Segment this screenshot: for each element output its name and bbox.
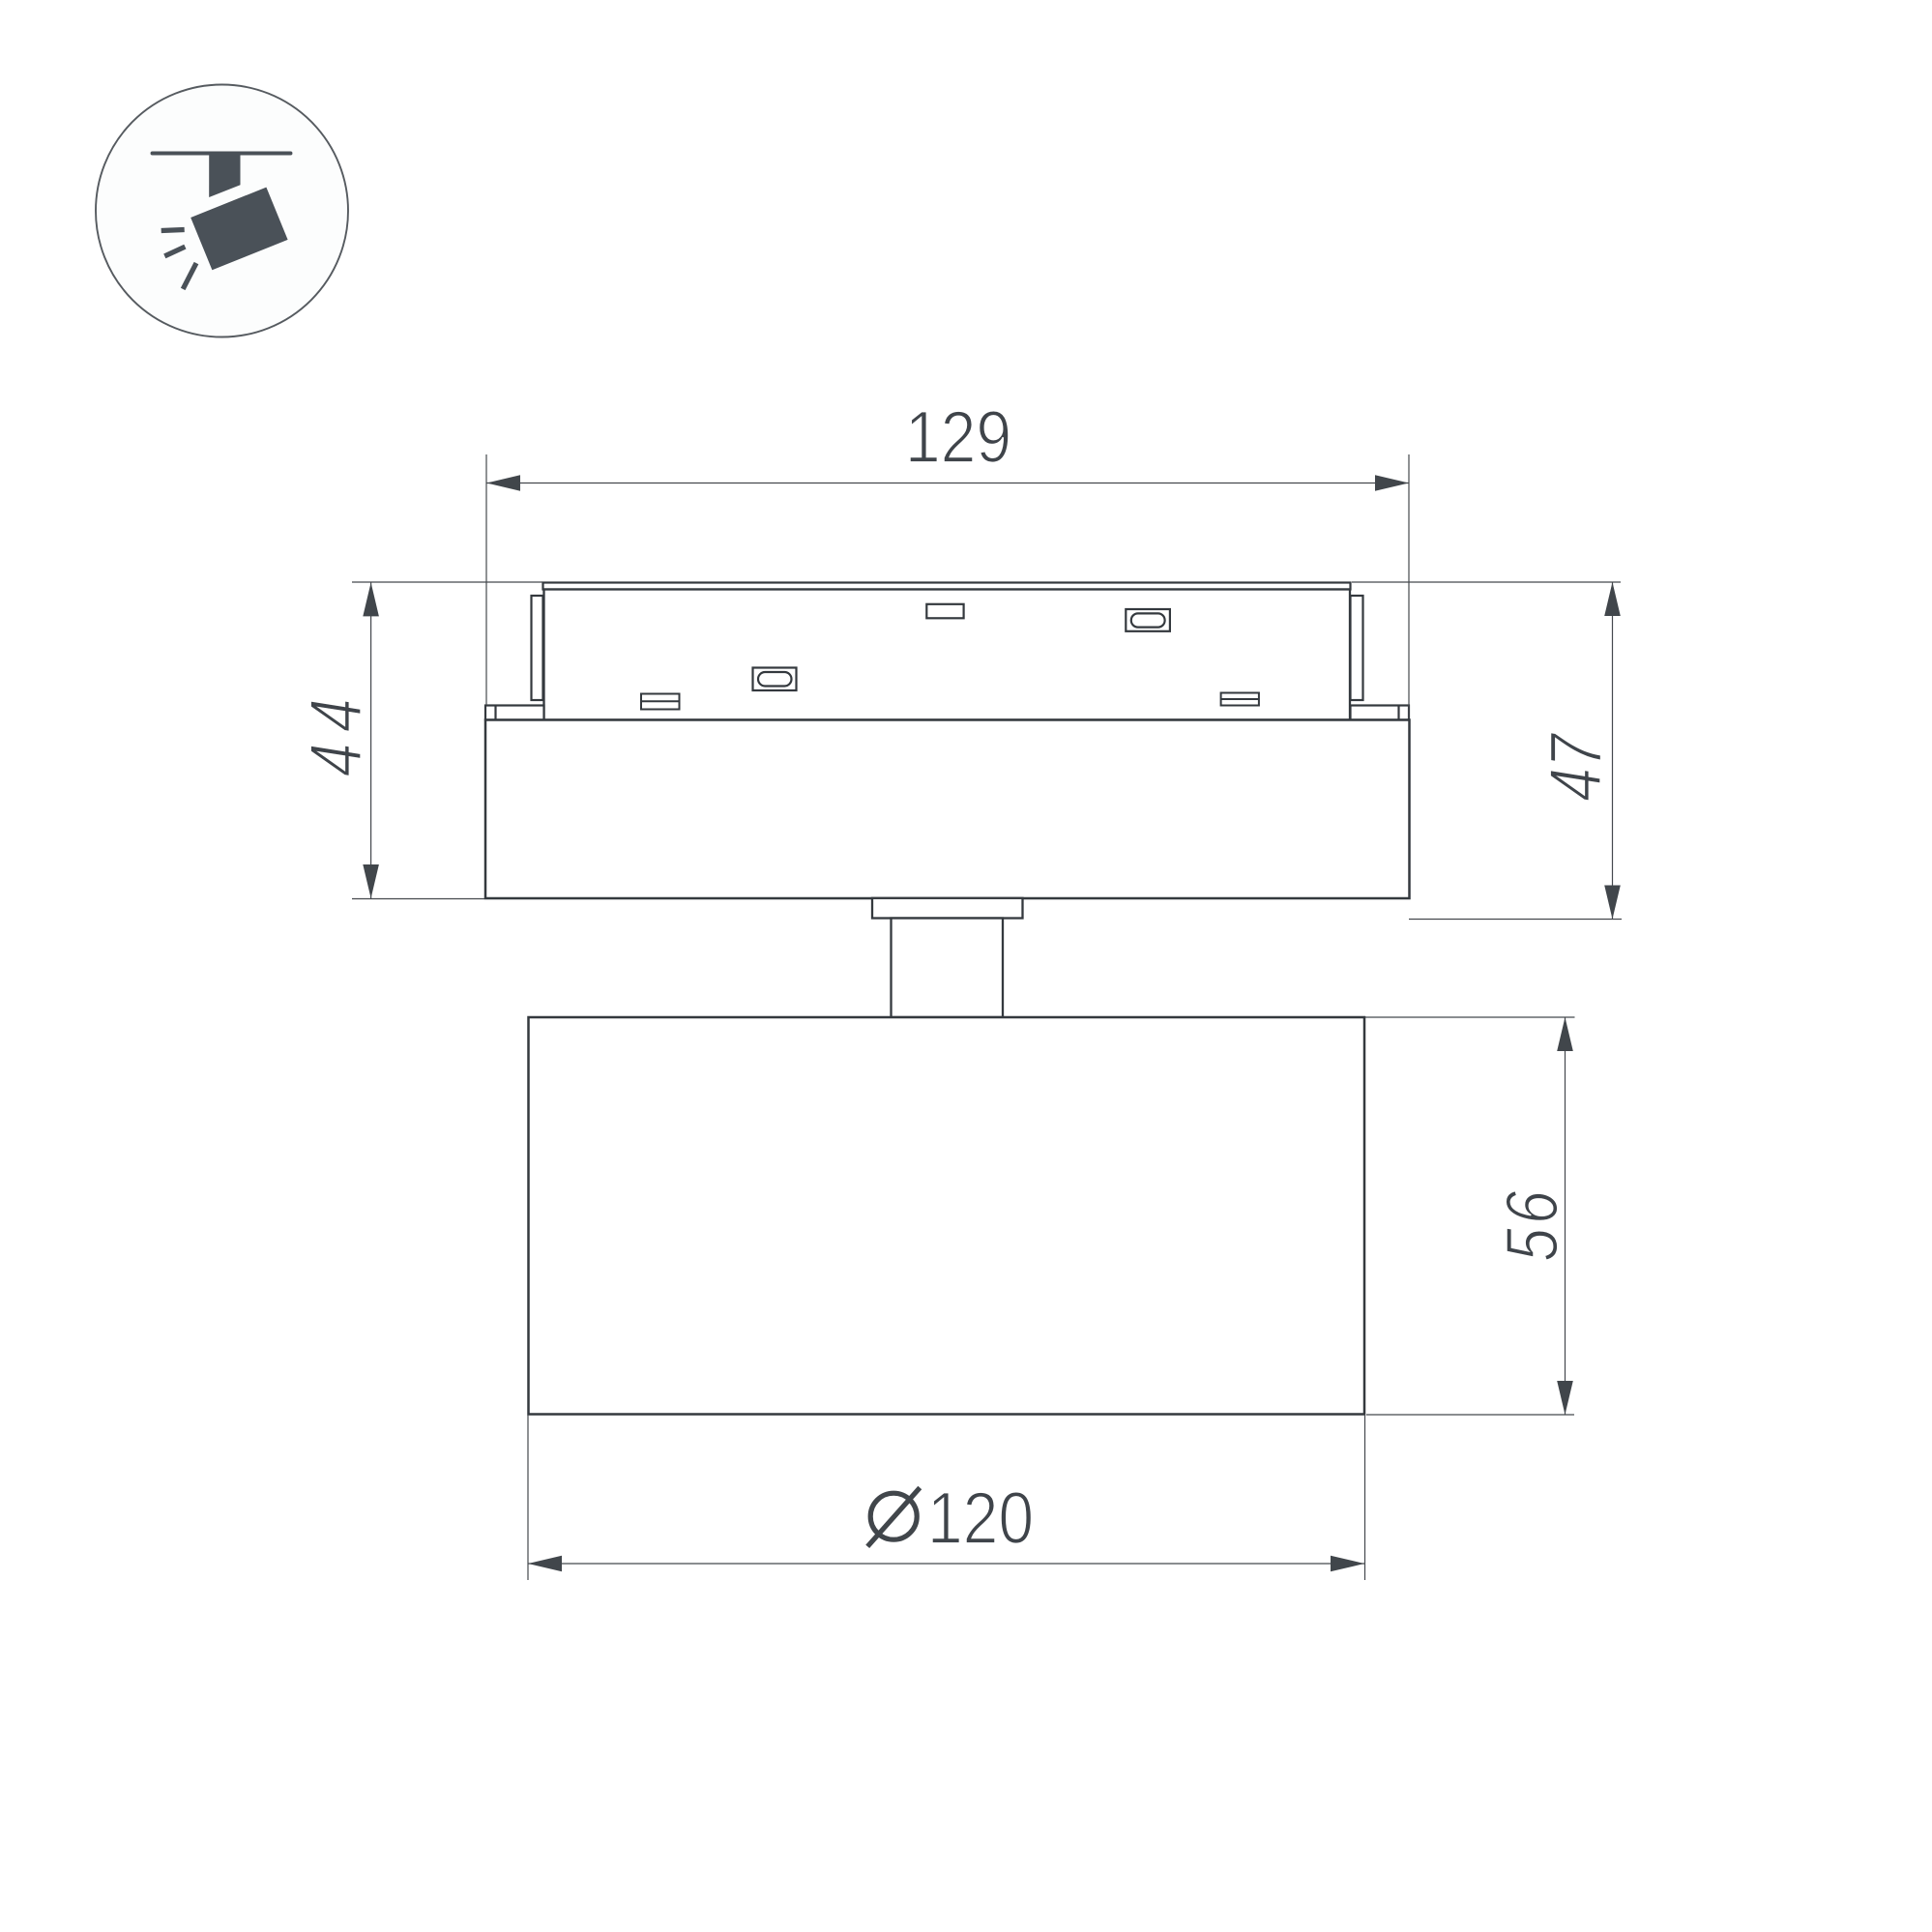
svg-text:120: 120 bbox=[927, 1478, 1034, 1560]
svg-text:129: 129 bbox=[905, 397, 1011, 479]
svg-text:44: 44 bbox=[295, 688, 377, 776]
svg-text:47: 47 bbox=[1535, 732, 1617, 801]
svg-text:56: 56 bbox=[1491, 1186, 1573, 1262]
